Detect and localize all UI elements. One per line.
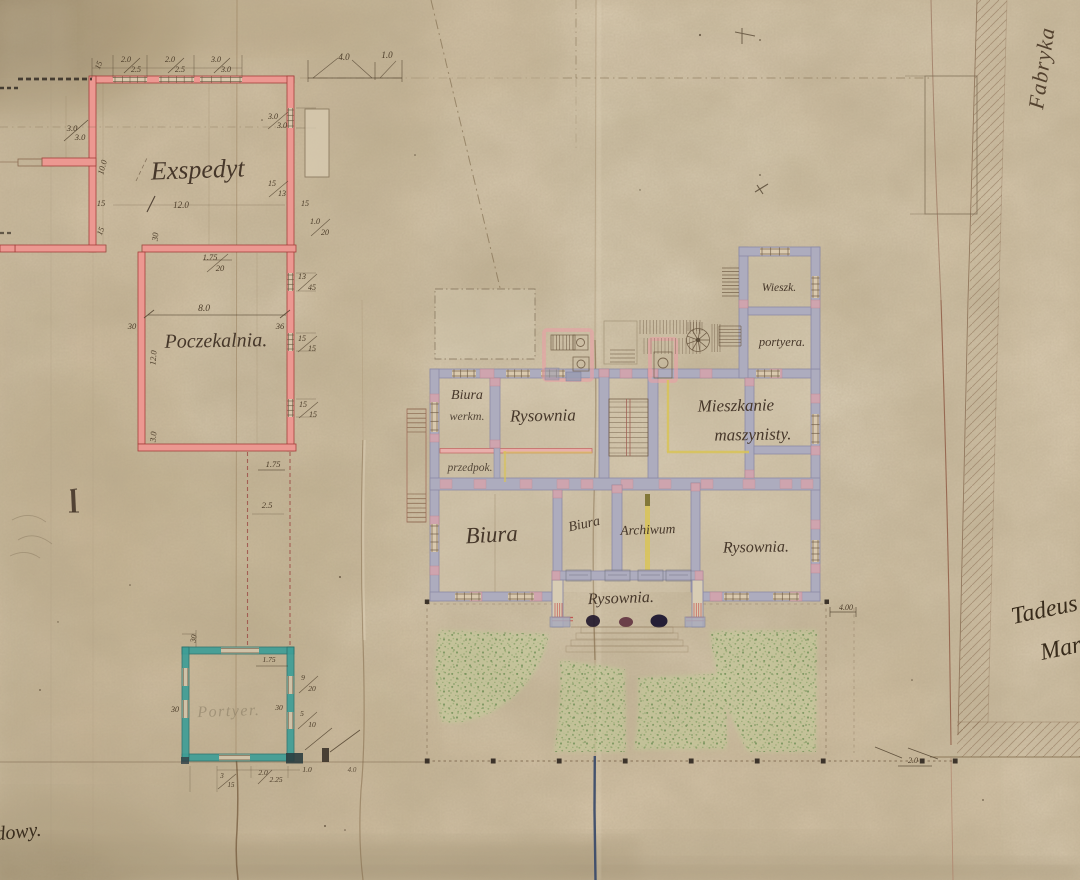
svg-text:3.0: 3.0	[147, 430, 158, 443]
svg-text:15: 15	[228, 781, 236, 789]
svg-text:3.0: 3.0	[210, 55, 221, 64]
svg-text:30: 30	[127, 321, 137, 331]
svg-text:15: 15	[299, 400, 307, 409]
svg-text:2.0: 2.0	[165, 55, 175, 64]
svg-text:Wieszk.: Wieszk.	[762, 282, 796, 294]
svg-text:15: 15	[268, 179, 276, 188]
svg-text:1.0: 1.0	[381, 50, 393, 60]
svg-text:36: 36	[275, 321, 285, 331]
svg-text:5: 5	[300, 709, 304, 718]
svg-text:2.5: 2.5	[131, 65, 141, 74]
svg-text:Biura: Biura	[465, 521, 519, 549]
svg-text:4.0: 4.0	[338, 52, 350, 62]
svg-text:30: 30	[150, 231, 161, 242]
svg-text:Biura: Biura	[451, 388, 483, 403]
svg-text:30: 30	[274, 703, 283, 712]
svg-text:12.0: 12.0	[147, 349, 158, 365]
svg-text:13: 13	[278, 189, 286, 198]
svg-text:Rysownia.: Rysownia.	[587, 589, 654, 608]
svg-text:4.0: 4.0	[348, 766, 357, 774]
svg-text:1.0: 1.0	[310, 217, 320, 226]
svg-text:3.0: 3.0	[267, 112, 278, 121]
svg-text:20: 20	[321, 228, 329, 237]
svg-text:2.5: 2.5	[262, 500, 273, 510]
svg-text:2.0: 2.0	[908, 756, 918, 765]
svg-text:30: 30	[170, 705, 179, 714]
svg-text:2.0: 2.0	[121, 55, 131, 64]
svg-text:1.75: 1.75	[262, 655, 275, 664]
svg-text:Exspedyt: Exspedyt	[149, 153, 246, 185]
svg-text:przedpok.: przedpok.	[446, 462, 492, 474]
svg-text:15: 15	[97, 198, 106, 208]
svg-text:2.25: 2.25	[269, 775, 282, 784]
svg-text:Rysownia.: Rysownia.	[722, 538, 789, 556]
svg-text:3.0: 3.0	[220, 65, 231, 74]
svg-text:1.75: 1.75	[266, 459, 281, 469]
svg-text:Mieszkanie: Mieszkanie	[697, 395, 775, 415]
svg-text:1.75: 1.75	[203, 252, 218, 262]
svg-text:9: 9	[301, 673, 305, 682]
svg-text:Rysownia: Rysownia	[509, 405, 576, 425]
svg-text:3: 3	[219, 772, 224, 780]
svg-text:4.00: 4.00	[839, 603, 853, 612]
svg-text:Portyer.: Portyer.	[196, 702, 261, 721]
svg-text:8.0: 8.0	[198, 304, 210, 314]
svg-text:3.0: 3.0	[74, 132, 86, 142]
svg-text:15: 15	[301, 199, 309, 208]
svg-text:20: 20	[308, 684, 316, 693]
svg-text:30: 30	[188, 634, 198, 644]
svg-text:Poczekalnia.: Poczekalnia.	[163, 329, 267, 353]
svg-text:13: 13	[298, 272, 306, 281]
svg-text:maszynisty.: maszynisty.	[714, 424, 791, 444]
svg-text:Archiwum: Archiwum	[619, 521, 676, 538]
svg-text:15: 15	[308, 344, 316, 353]
svg-text:15: 15	[298, 334, 306, 343]
svg-text:20: 20	[216, 263, 225, 273]
svg-text:10: 10	[308, 720, 316, 729]
svg-text:3.0: 3.0	[276, 121, 287, 130]
svg-text:1.0: 1.0	[302, 765, 312, 774]
svg-text:portyera.: portyera.	[758, 335, 805, 349]
svg-text:2.5: 2.5	[175, 65, 185, 74]
svg-text:15: 15	[309, 410, 317, 419]
svg-text:45: 45	[308, 283, 316, 292]
svg-text:werkm.: werkm.	[450, 409, 485, 423]
